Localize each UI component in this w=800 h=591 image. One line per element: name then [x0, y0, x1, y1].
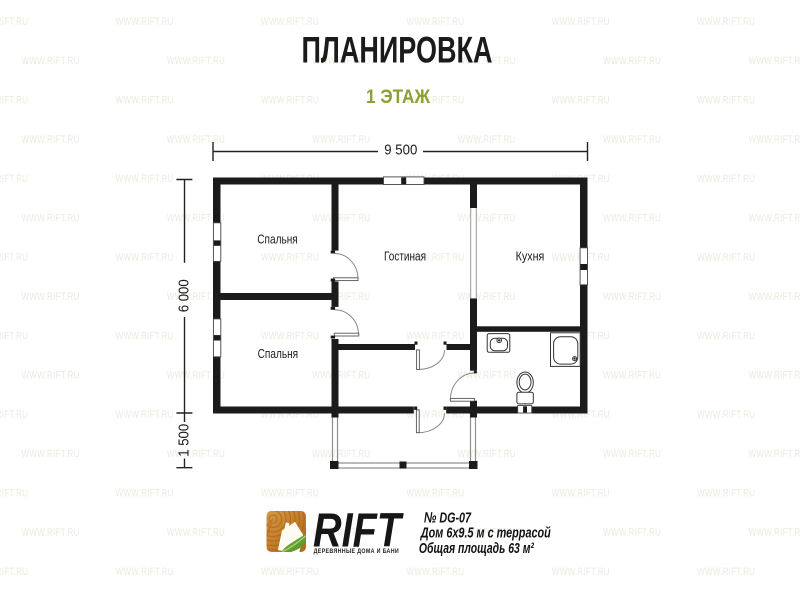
- svg-text:Спальня: Спальня: [257, 232, 298, 246]
- svg-text:ПЛАНИРОВКА: ПЛАНИРОВКА: [302, 29, 493, 71]
- svg-text:Общая площадь 63 м²: Общая площадь 63 м²: [419, 540, 535, 557]
- svg-text:Гостиная: Гостиная: [384, 249, 426, 263]
- svg-text:1 ЭТАЖ: 1 ЭТАЖ: [366, 86, 430, 108]
- svg-text:ДЕРЕВЯННЫЕ ДОМА И БАНИ: ДЕРЕВЯННЫЕ ДОМА И БАНИ: [314, 548, 400, 555]
- svg-text:6 000: 6 000: [175, 279, 192, 312]
- svg-text:Дом 6х9.5 м с террасой: Дом 6х9.5 м с террасой: [419, 524, 550, 541]
- svg-text:Кухня: Кухня: [516, 249, 545, 263]
- svg-text:1 500: 1 500: [175, 424, 192, 457]
- svg-text:Спальня: Спальня: [258, 347, 299, 361]
- svg-text:9 500: 9 500: [384, 142, 417, 159]
